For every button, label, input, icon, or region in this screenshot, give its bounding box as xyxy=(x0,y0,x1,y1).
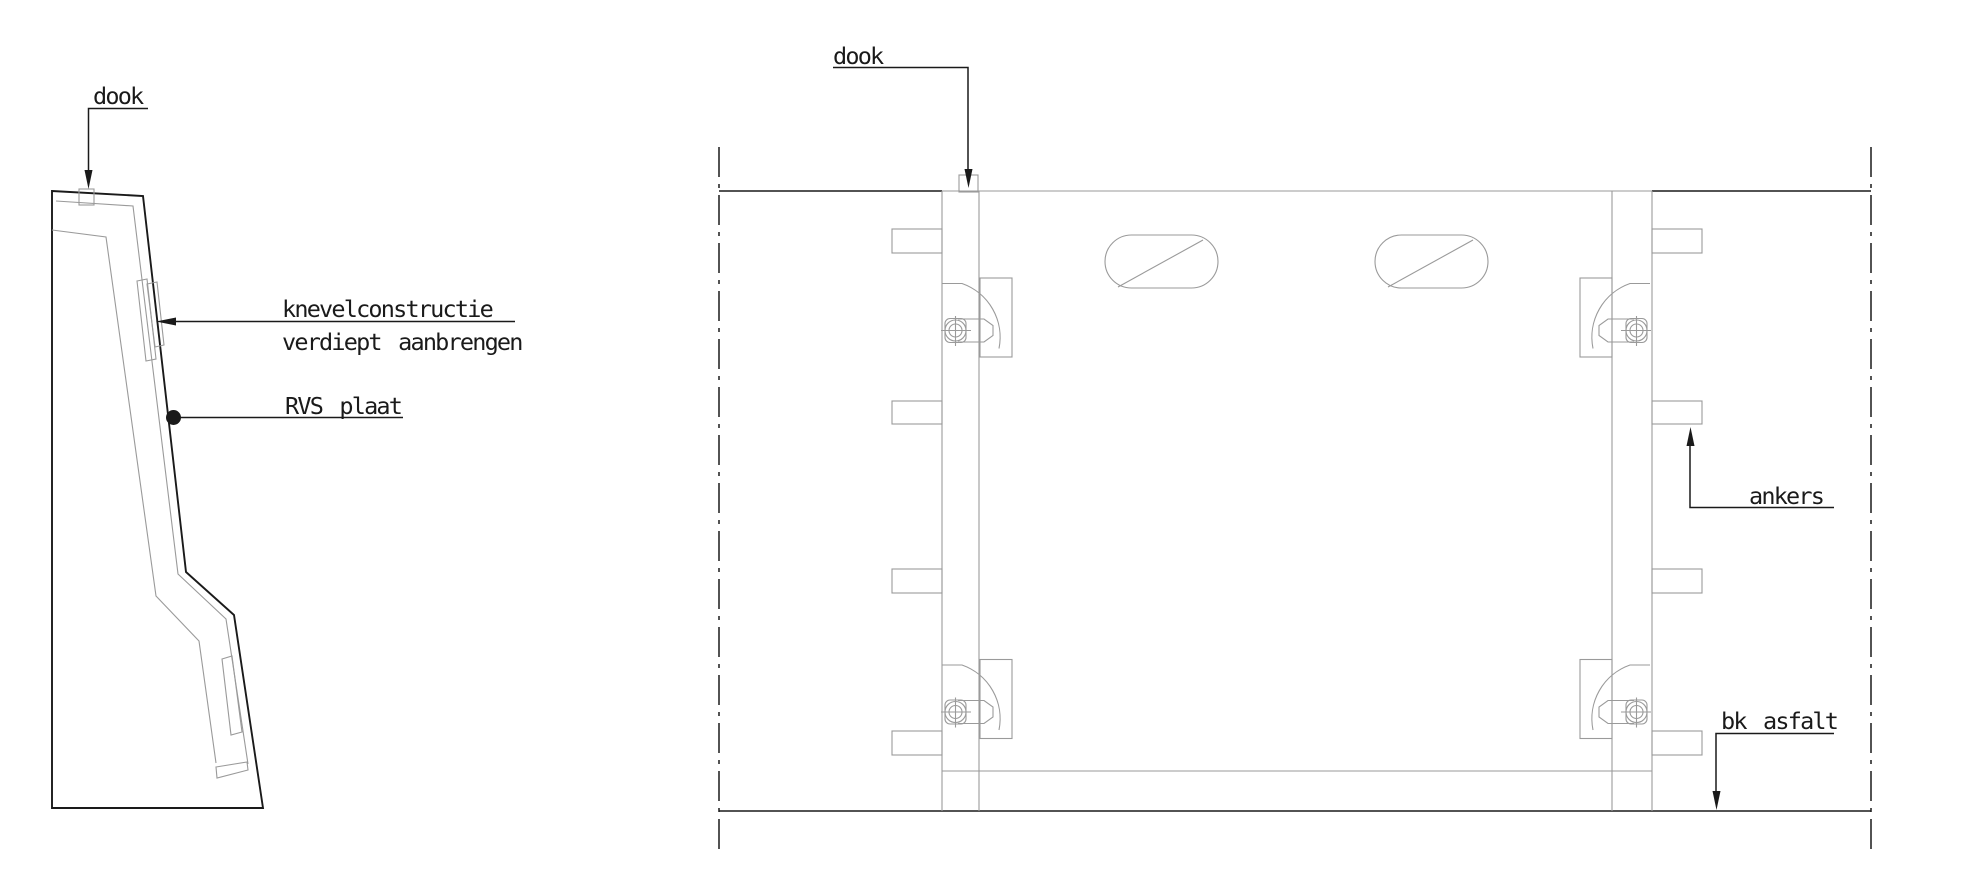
anchor-tab-right-3 xyxy=(1652,569,1702,593)
arrow-bk-asfalt xyxy=(1713,791,1721,810)
anchor-detail-bottom-left xyxy=(941,660,1012,739)
anchor-detail-bottom-right xyxy=(1580,660,1651,739)
leader-bk-asfalt xyxy=(1716,734,1834,794)
lifting-slot-1-diagonal xyxy=(1118,240,1203,287)
anchor-tab-right-1 xyxy=(1652,229,1702,253)
leader-dook-right xyxy=(833,68,968,172)
left-view-cross-section: dook knevelconstructie verdiept aanbreng… xyxy=(52,82,522,808)
anchor-tab-left-4 xyxy=(892,731,942,755)
lifting-slot-2-diagonal xyxy=(1388,240,1473,287)
anchor-tab-right-2 xyxy=(1652,401,1702,424)
technical-drawing: dook knevelconstructie verdiept aanbreng… xyxy=(0,0,1979,888)
lifting-slot-1 xyxy=(1105,235,1218,288)
right-view-elevation: dook ankers bk asfalt xyxy=(719,42,1871,849)
anchor-tab-right-4 xyxy=(1652,731,1702,755)
anchor-detail-top-right xyxy=(1580,278,1651,357)
dot-rvs-plaat xyxy=(166,410,181,425)
leader-dook-left xyxy=(89,109,149,173)
plate-back-line xyxy=(56,201,248,764)
label-ankers: ankers xyxy=(1749,482,1823,510)
lower-cross-plate xyxy=(216,762,248,778)
label-bk-asfalt: bk asfalt xyxy=(1721,707,1837,735)
label-dook-left: dook xyxy=(93,82,144,110)
label-dook-right: dook xyxy=(833,42,884,70)
arrow-dook-left xyxy=(85,170,93,189)
inner-recess-line xyxy=(52,230,216,763)
arrow-dook-right xyxy=(965,169,973,188)
anchor-tab-left-1 xyxy=(892,229,942,253)
label-rvs-plaat: RVS plaat xyxy=(285,392,401,420)
label-knevel-line1: knevelconstructie xyxy=(282,295,493,323)
anchor-detail-top-left xyxy=(941,278,1012,357)
arrow-ankers xyxy=(1687,427,1695,446)
label-knevel-line2: verdiept aanbrengen xyxy=(282,328,522,356)
anchor-tab-left-3 xyxy=(892,569,942,593)
lifting-slot-2 xyxy=(1375,235,1488,288)
lower-recess-plate xyxy=(222,656,242,735)
drawing-canvas: dook knevelconstructie verdiept aanbreng… xyxy=(0,0,1979,888)
anchor-tab-left-2 xyxy=(892,401,942,424)
arrow-knevel xyxy=(156,318,176,326)
